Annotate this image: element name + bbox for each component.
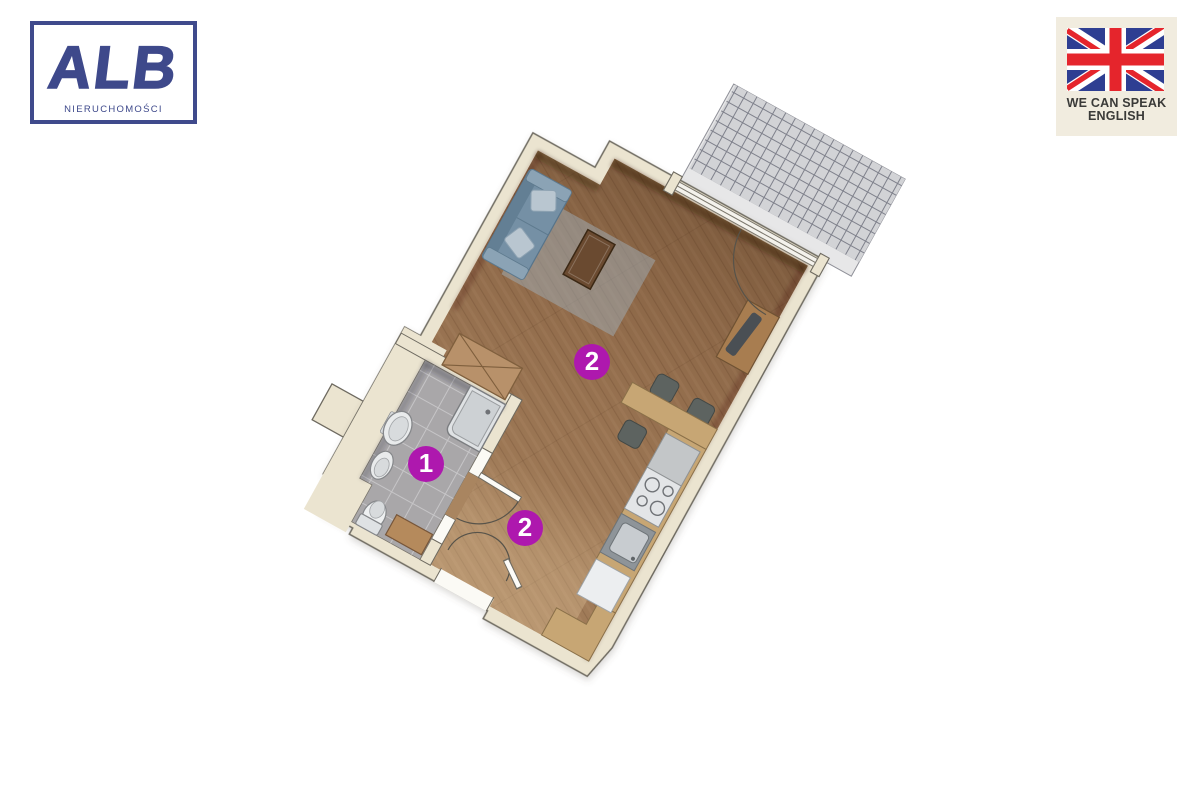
svg-text:1: 1 [419,448,433,478]
svg-text:2: 2 [518,512,532,542]
svg-text:2: 2 [585,346,599,376]
